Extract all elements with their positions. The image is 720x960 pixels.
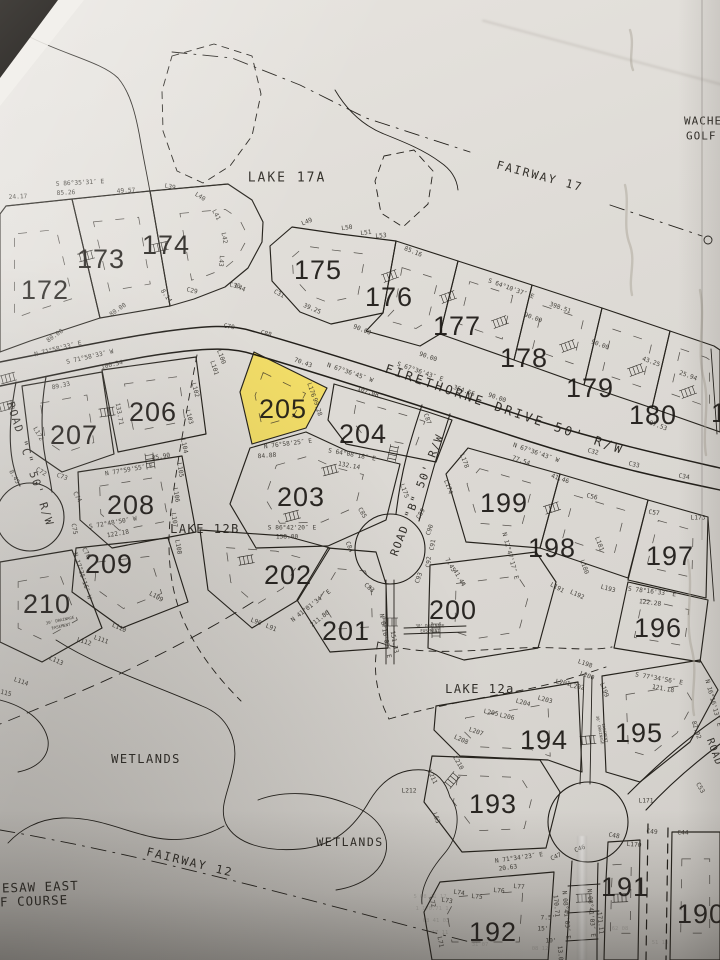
lot-number-177: 177 <box>433 311 481 341</box>
lot-number-200: 200 <box>429 595 477 625</box>
dimension-label: L178 <box>458 453 470 470</box>
lot-number-205: 205 <box>259 394 307 424</box>
dimension-label: C33 <box>628 460 641 469</box>
lot-number-172: 172 <box>21 275 69 305</box>
lot-number-207: 207 <box>50 420 98 450</box>
easement-tick <box>321 464 339 476</box>
dimension-label: C90 <box>425 523 435 536</box>
dimension-label: N 16°16'13″ E <box>703 678 720 727</box>
dimension-label: C83 <box>362 582 375 595</box>
dimension-label: 122.28 <box>638 598 661 608</box>
place-label: FAIRWAY 12 <box>145 844 235 879</box>
dimension-label: C44 <box>677 830 688 837</box>
dimension-label: 24.17 <box>9 193 28 201</box>
easement-tick <box>580 735 597 744</box>
dimension-label: C56 <box>586 492 599 501</box>
easement-tick <box>444 771 460 788</box>
dimension-label: 90.00 <box>418 351 438 364</box>
dimension-label: L53 <box>375 232 387 240</box>
lot-number-196: 196 <box>634 613 682 643</box>
wetlands-outline <box>422 797 457 904</box>
lot-number-210: 210 <box>23 589 71 619</box>
dimension-label: L109 <box>148 590 165 604</box>
pond-outline <box>0 700 48 772</box>
dimension-label: 85.26 <box>57 189 76 197</box>
place-label: FAIRWAY 17 <box>495 158 585 195</box>
lot-number-partial: 17 <box>711 398 720 428</box>
dimension-label: 90.00 <box>590 339 610 352</box>
dimension-label: L51 <box>360 229 372 237</box>
dimension-label: L106 <box>171 487 181 503</box>
lot-number-176: 176 <box>365 282 413 312</box>
place-label: LAKE 12a <box>445 682 515 696</box>
dimension-label: S 86°42'20″ E <box>268 524 317 532</box>
lot-197-east-line <box>708 517 714 601</box>
showthrough-text: 17 11 <box>432 930 449 936</box>
dimension-label: L91 <box>265 623 278 634</box>
dimension-label: 90.00 <box>523 312 543 325</box>
lot-number-191: 191 <box>601 872 649 902</box>
dimension-label: 133.71 <box>114 402 125 425</box>
easement-tick <box>237 555 254 566</box>
dimension-label: C34 <box>678 473 690 482</box>
place-label: WETLANDS <box>316 835 383 849</box>
dimension-label: L108 <box>173 539 183 555</box>
dimension-label: L174 <box>442 479 454 496</box>
easement-tick <box>0 372 17 384</box>
dimension-label: N 71°34'23″ E <box>494 850 543 865</box>
plat-map-drawing: 1721731741751761771781791802052042032062… <box>0 0 720 960</box>
dimension-label: 89.33 <box>51 381 71 392</box>
dimension-label: C75 <box>70 523 79 535</box>
place-label: WETLANDS <box>111 752 181 766</box>
dimension-label: L212 <box>402 788 417 795</box>
showthrough-text: 5 08.41 17 <box>413 894 446 900</box>
boundary-point-marker <box>704 236 712 244</box>
dimension-label: S 78°16'33″ E <box>628 585 677 599</box>
dimension-label: 107.08 <box>356 385 380 399</box>
dimension-label: 43.25 <box>641 356 661 369</box>
dimension-label: C70 <box>223 323 235 332</box>
easement-tick <box>627 364 645 377</box>
dimension-label: L180 <box>578 559 590 576</box>
dimension-label: L101 <box>208 360 219 377</box>
lot-190-boundary <box>670 832 720 960</box>
dimension-label: 49.57 <box>117 187 136 195</box>
dimension-label: C48 <box>608 832 620 841</box>
dimension-label: L77 <box>513 883 525 891</box>
place-label: GOLF <box>686 130 717 143</box>
place-label: ROAD "B" 50' R/W <box>388 432 447 558</box>
showthrough-text: 31 07 <box>472 942 489 948</box>
lot-number-193: 193 <box>469 789 517 819</box>
dimension-label: 13.09 <box>556 945 565 960</box>
dimension-label: 77.54 <box>511 455 531 468</box>
dimension-label: 7.5' <box>541 915 556 922</box>
easement-tick <box>559 340 577 353</box>
dimension-label: L199 <box>598 682 610 699</box>
wetlands-outline <box>8 818 224 843</box>
dimension-label: 84.88 <box>257 452 276 461</box>
lot-number-194: 194 <box>520 725 568 755</box>
dimension-label: 138.00 <box>276 534 299 541</box>
lake-17a-outline <box>162 44 261 183</box>
dimension-label: C88 <box>260 329 273 339</box>
place-label: F COURSE <box>0 892 68 909</box>
dimension-label: L50 <box>341 224 353 233</box>
lot-number-175: 175 <box>294 255 342 285</box>
lot-number-174: 174 <box>142 230 190 260</box>
dimension-label: L175 <box>398 483 410 500</box>
dimension-label: 122.18 <box>106 529 129 540</box>
dimension-label: C92 <box>425 556 433 568</box>
dimension-label: 80.00 <box>45 328 64 345</box>
dimension-label: 10' <box>545 938 556 945</box>
dimension-label: L111 <box>93 634 110 646</box>
dimension-label: 41.44 <box>451 568 467 588</box>
easement-tick <box>679 386 697 399</box>
dimension-label: L202 <box>569 682 585 692</box>
showthrough-text: 62 08 <box>612 926 629 932</box>
dimension-label: L171 <box>639 798 654 805</box>
place-label: ROAD "C" 50' R/W <box>4 400 57 528</box>
dimension-label: C46 <box>574 844 587 854</box>
dimension-label: EASEMENT <box>420 629 440 634</box>
pencil-scribble <box>630 30 633 70</box>
dimension-label: L90 <box>250 617 263 627</box>
plat-map-photo: 1721731741751761771781791802052042032062… <box>0 0 720 960</box>
lot-number-209: 209 <box>85 549 133 579</box>
dimension-label: 398.51 <box>548 301 572 315</box>
dimension-label: L40 <box>193 191 206 203</box>
pencil-scribble <box>700 290 706 455</box>
dimension-label: C73 <box>56 472 69 482</box>
dimension-label: L74 <box>453 889 465 898</box>
dimension-label: L114 <box>13 676 30 688</box>
dimension-label: 20.63 <box>498 863 518 873</box>
dimension-label: 132.14 <box>337 461 360 472</box>
lot-number-173: 173 <box>77 244 125 274</box>
dimension-label: 85.90 <box>151 452 171 462</box>
dimension-label: L181 <box>593 536 605 553</box>
dimension-label: C29 <box>186 286 199 295</box>
place-label: WACHE <box>684 115 720 128</box>
dimension-label: L200 <box>579 670 596 682</box>
lot-number-197: 197 <box>646 541 694 571</box>
dimension-label: L75 <box>471 893 483 901</box>
lot-number-195: 195 <box>615 718 663 748</box>
pencil-scribble <box>688 560 694 715</box>
dimension-label: L71 <box>436 936 445 948</box>
dimension-label: 25.94 <box>678 370 698 383</box>
dimension-label: S 86°35'31″ E <box>56 177 105 188</box>
sand-trap-outline <box>375 150 433 227</box>
dimension-label: C49 <box>646 828 658 836</box>
dimension-label: L208 <box>453 734 470 747</box>
dimension-label: 90.00 <box>352 323 372 337</box>
golf-boundary-line <box>0 602 253 724</box>
lake-12a-outline <box>378 642 612 651</box>
showthrough-text: 1 170.71 1 <box>415 906 448 912</box>
dimension-label: L192 <box>569 589 586 602</box>
dimension-label: L49 <box>301 217 314 228</box>
creek-line <box>28 36 150 192</box>
dimension-label: L76 <box>493 887 505 895</box>
lot-number-198: 198 <box>528 533 576 563</box>
pencil-scribble <box>625 185 632 295</box>
dimension-label: L43 <box>217 255 225 267</box>
dimension-label: L42 <box>220 232 229 244</box>
lot-number-199: 199 <box>480 488 528 518</box>
lot-number-190: 190 <box>677 899 720 929</box>
dimension-label: 41.46 <box>550 473 570 486</box>
dimension-label: 80.00 <box>108 302 127 319</box>
dimension-label: C91 <box>429 539 438 551</box>
dimension-label: L115 <box>0 688 12 699</box>
fairway-17-line <box>172 52 702 236</box>
lot-number-202: 202 <box>264 560 312 590</box>
dimension-label: N 08°41'03″ E <box>560 890 572 939</box>
dimension-label: L104 <box>179 438 189 454</box>
dimension-label: L207 <box>468 726 485 738</box>
dimension-label: L206 <box>499 712 515 722</box>
dimension-label: L204 <box>515 698 531 709</box>
dimension-label: L102 <box>190 382 201 398</box>
dimension-label: C47 <box>549 851 562 862</box>
dimension-label: C87 <box>422 413 432 426</box>
dimension-label: L191 <box>549 581 566 595</box>
dimension-label: L41 <box>210 208 222 221</box>
place-label: LAKE 12B <box>170 522 240 536</box>
lot-number-201: 201 <box>322 616 370 646</box>
dimension-label: L173 <box>691 515 706 522</box>
dimension-label: C53 <box>694 781 706 794</box>
dimension-label: 8.14 <box>159 288 173 304</box>
dimension-label: C57 <box>648 509 660 518</box>
dimension-label: L205 <box>483 708 499 718</box>
dimension-label: C31 <box>272 288 285 300</box>
dimension-label: 121.18 <box>651 684 674 695</box>
dimension-label: L105 <box>175 462 185 478</box>
showthrough-text: 08 12 <box>532 946 549 952</box>
showthrough-text: 08 41 03 <box>423 918 450 924</box>
dimension-label: L113 <box>48 655 65 668</box>
dimension-label: C30 <box>229 282 241 291</box>
dimension-label: L112 <box>76 636 93 647</box>
dimension-label: 15' <box>537 926 548 933</box>
lot-number-179: 179 <box>566 373 614 403</box>
dimension-label: L110 <box>111 622 128 635</box>
dimension-label: C85 <box>356 506 368 519</box>
place-label: LAKE 17A <box>248 171 327 186</box>
dimension-label: L198 <box>577 658 594 670</box>
wetlands-outline <box>56 640 450 850</box>
dimension-label: L170 <box>626 841 642 849</box>
dimension-label: C74 <box>71 490 83 503</box>
place-label: ROAD <box>704 737 720 767</box>
dimension-label: N 67°36'45″ W <box>326 361 375 384</box>
lot-number-206: 206 <box>129 397 177 427</box>
dimension-label: L103 <box>184 409 195 425</box>
dimension-label: S 64°10'37″ E <box>487 276 536 300</box>
dimension-label: L39 <box>164 182 177 191</box>
dimension-label: 85.16 <box>403 245 423 259</box>
dimension-label: N 71°58'33″ E <box>33 339 82 359</box>
lot-number-204: 204 <box>339 419 387 449</box>
dimension-label: C84 <box>344 541 354 554</box>
lot-number-178: 178 <box>500 343 548 373</box>
dimension-label: L203 <box>537 695 553 706</box>
lot-number-203: 203 <box>277 482 325 512</box>
showthrough-text: 51 13 <box>652 940 669 946</box>
creek-line <box>335 90 458 190</box>
dimension-label: L193 <box>600 584 616 595</box>
